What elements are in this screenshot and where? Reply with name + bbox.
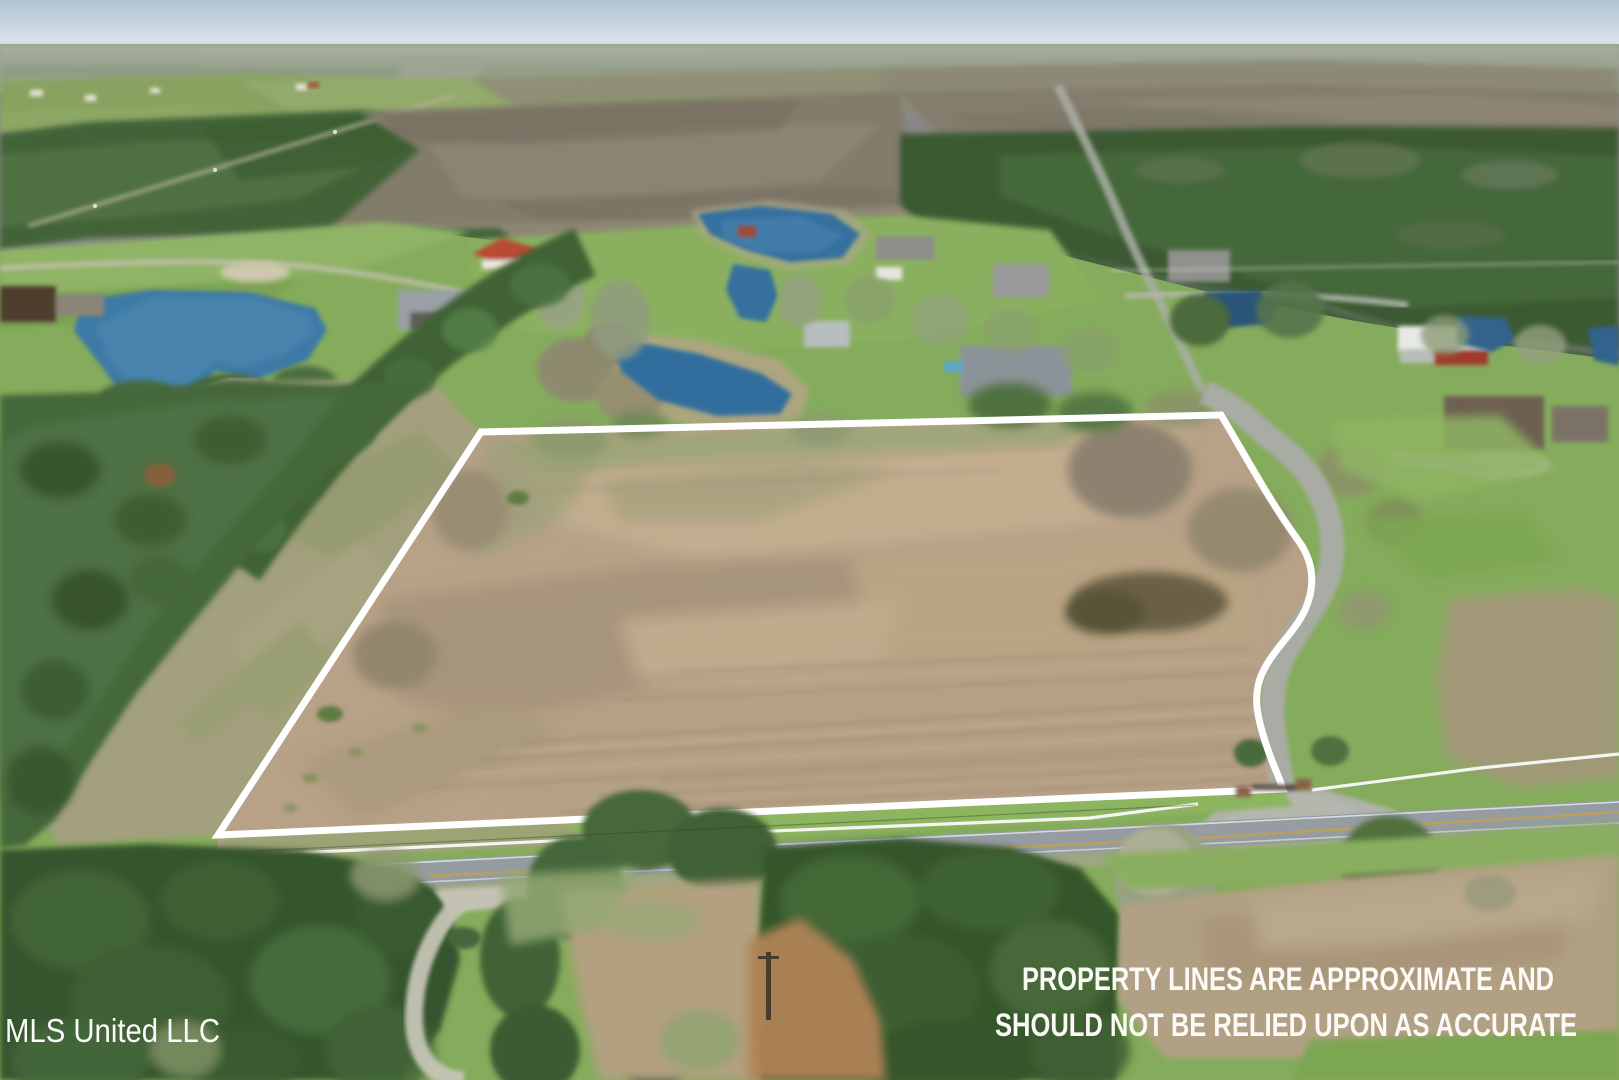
svg-text:SHOULD NOT BE RELIED UPON AS A: SHOULD NOT BE RELIED UPON AS ACCURATE <box>995 1007 1577 1043</box>
svg-text:MLS United LLC: MLS United LLC <box>5 1012 220 1049</box>
svg-text:PROPERTY LINES ARE APPROXIMATE: PROPERTY LINES ARE APPROXIMATE AND <box>1022 961 1554 997</box>
